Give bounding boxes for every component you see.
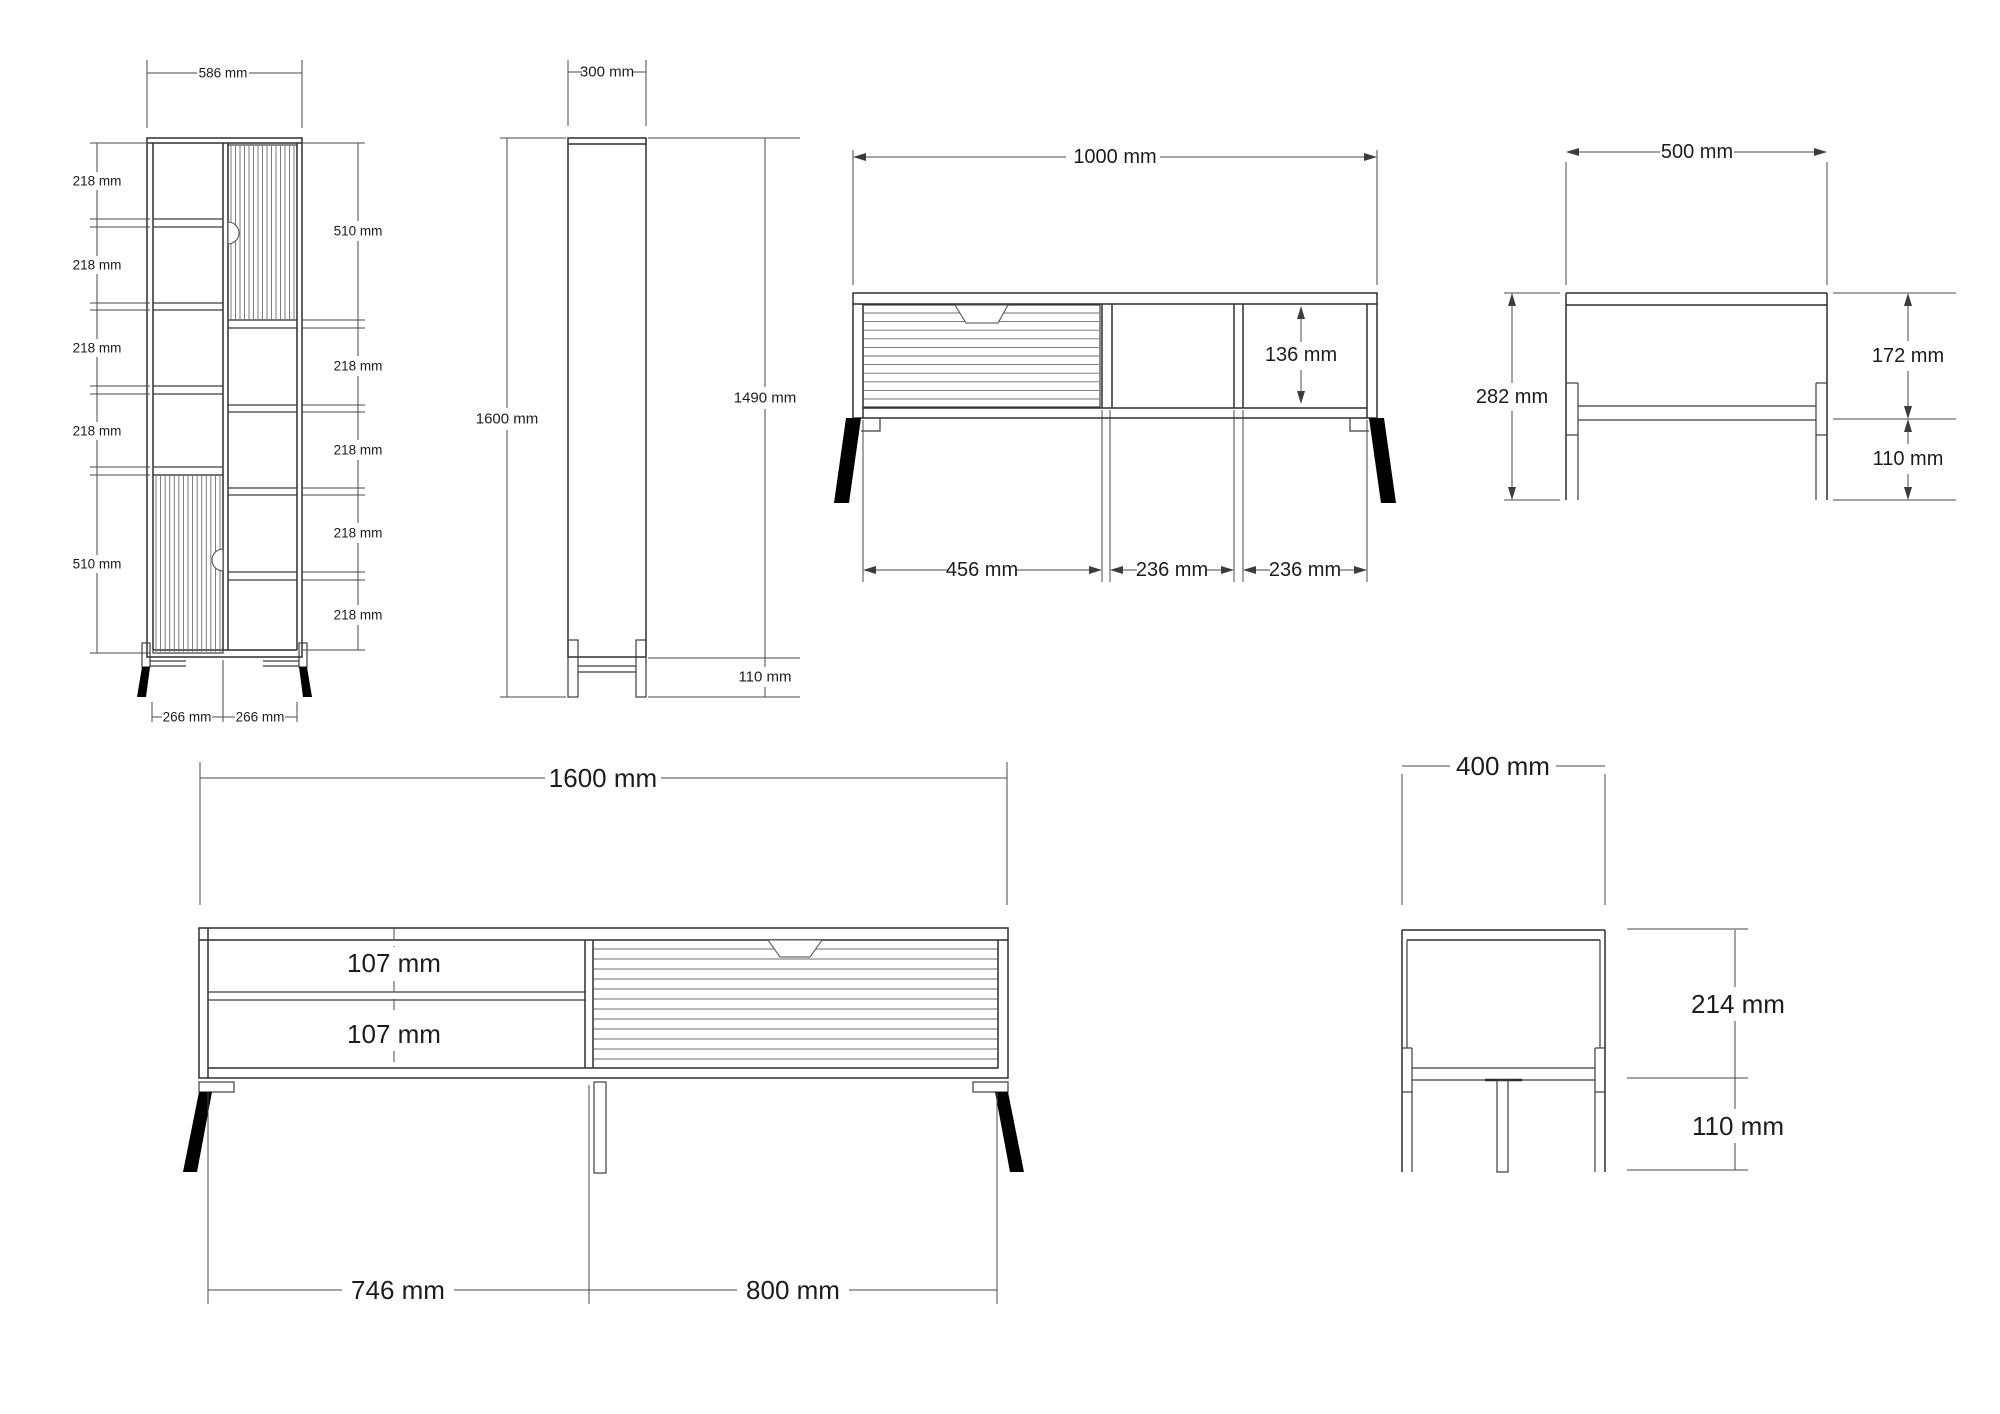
dim-label: 136 mm	[1265, 344, 1337, 366]
dim-label: 510 mm	[73, 557, 122, 572]
dim-tv1000-leg-height: 110 mm	[1833, 419, 1956, 500]
dim-label: 110 mm	[738, 669, 791, 686]
tv-stand-1600-side-view: 400 mm 214 mm 110 mm	[1402, 751, 1785, 1172]
cabinet-front-legs	[137, 643, 312, 697]
dim-label: 218 mm	[73, 258, 122, 273]
dim-label: 282 mm	[1476, 386, 1548, 408]
dim-label: 218 mm	[73, 174, 122, 189]
dim-tv1600-bottom: 746 mm 800 mm	[208, 1085, 997, 1305]
dim-label: 456 mm	[946, 559, 1018, 581]
dim-tv1000-total-height: 282 mm	[1476, 293, 1560, 500]
dim-label: 266 mm	[163, 710, 212, 725]
dim-label: 218 mm	[73, 341, 122, 356]
dim-label: 218 mm	[334, 608, 383, 623]
dim-label: 236 mm	[1136, 559, 1208, 581]
upper-door-handle-notch	[228, 222, 239, 244]
dim-shelf-label: 107 mm	[347, 948, 441, 978]
dim-label: 218 mm	[334, 443, 383, 458]
dim-label: 1490 mm	[734, 390, 797, 407]
tv-stand-1000-side-view: 500 mm 282 mm 172 mm 110 mm	[1476, 141, 1956, 500]
dim-shelf-label: 107 mm	[347, 1019, 441, 1049]
dim-tv1000-body-height: 172 mm	[1833, 293, 1956, 419]
dim-label: 110 mm	[1692, 1111, 1784, 1141]
dim-cabinet-leg-height: 110 mm	[648, 658, 800, 697]
dim-tv1600-leg-height: 110 mm	[1627, 1078, 1784, 1170]
dim-label: 236 mm	[1269, 559, 1341, 581]
dim-label: 218 mm	[334, 359, 383, 374]
dim-tv1600-body-height: 214 mm	[1627, 929, 1785, 1078]
dim-tv1000-depth: 500 mm	[1566, 141, 1827, 285]
dim-label: 400 mm	[1456, 751, 1550, 781]
tv1600-door-slats	[594, 949, 997, 1059]
dim-label: 800 mm	[746, 1275, 840, 1305]
technical-drawing: 586 mm 218 mm 218 mm 218 mm 218 mm 510 m…	[0, 0, 2000, 1414]
cabinet-upper-door-slats	[231, 146, 294, 319]
dim-tv1000-bottom: 456 mm 236 mm 236 mm	[863, 410, 1367, 582]
dim-label: 500 mm	[1661, 141, 1733, 163]
dim-label: 586 mm	[199, 66, 248, 81]
dim-label: 300 mm	[580, 64, 634, 81]
tv1600-legs	[183, 1082, 1024, 1173]
dim-cabinet-total-height: 1600 mm	[476, 138, 566, 697]
tv-stand-1000-front-view: 1000 mm 136 mm	[834, 146, 1396, 582]
dim-cabinet-right-stack: 510 mm 218 mm 218 mm 218 mm 218 mm	[302, 143, 382, 650]
dim-label: 218 mm	[334, 526, 383, 541]
dim-label: 266 mm	[236, 710, 285, 725]
cabinet-side-view: 300 mm 1600 mm 1490 mm 110 mm	[476, 60, 800, 697]
dim-tv1600-width: 1600 mm	[200, 762, 1007, 905]
dim-cabinet-left-stack: 218 mm 218 mm 218 mm 218 mm 510 mm	[73, 143, 150, 653]
tv-stand-1600-front-view: 1600 mm 107 mm 107 mm 746 mm 800 mm	[183, 762, 1024, 1305]
dim-tv1000-opening-height: 136 mm	[1265, 306, 1337, 404]
tv1600-door-handle-notch	[768, 940, 822, 957]
dim-label: 1600 mm	[476, 411, 539, 428]
dim-label: 218 mm	[73, 424, 122, 439]
dim-label: 1000 mm	[1073, 146, 1156, 168]
dim-label: 1600 mm	[549, 763, 657, 793]
tv1000-legs	[834, 418, 1396, 503]
cabinet-side-legs	[568, 640, 646, 697]
dim-cabinet-body-height: 1490 mm	[648, 138, 800, 658]
tv1600-side-middle-leg	[1497, 1080, 1508, 1172]
dim-cabinet-width: 586 mm	[147, 60, 302, 128]
cabinet-lower-door-slats	[156, 476, 220, 652]
dim-label: 110 mm	[1873, 448, 1944, 470]
dim-cabinet-depth: 300 mm	[568, 60, 646, 126]
dim-tv1000-width: 1000 mm	[853, 146, 1377, 285]
dim-label: 214 mm	[1691, 989, 1785, 1019]
tv1000-door-handle-notch	[955, 305, 1008, 323]
drawing-sheet: 586 mm 218 mm 218 mm 218 mm 218 mm 510 m…	[0, 0, 2000, 1414]
cabinet-front-view: 586 mm 218 mm 218 mm 218 mm 218 mm 510 m…	[73, 60, 383, 725]
lower-door-handle-notch	[212, 549, 223, 571]
dim-tv1600-depth: 400 mm	[1402, 751, 1605, 905]
dim-label: 746 mm	[351, 1275, 445, 1305]
dim-cabinet-bottom: 266 mm 266 mm	[152, 660, 297, 725]
dim-label: 172 mm	[1872, 345, 1944, 367]
dim-label: 510 mm	[334, 224, 383, 239]
tv1000-door-slats	[864, 313, 1099, 399]
